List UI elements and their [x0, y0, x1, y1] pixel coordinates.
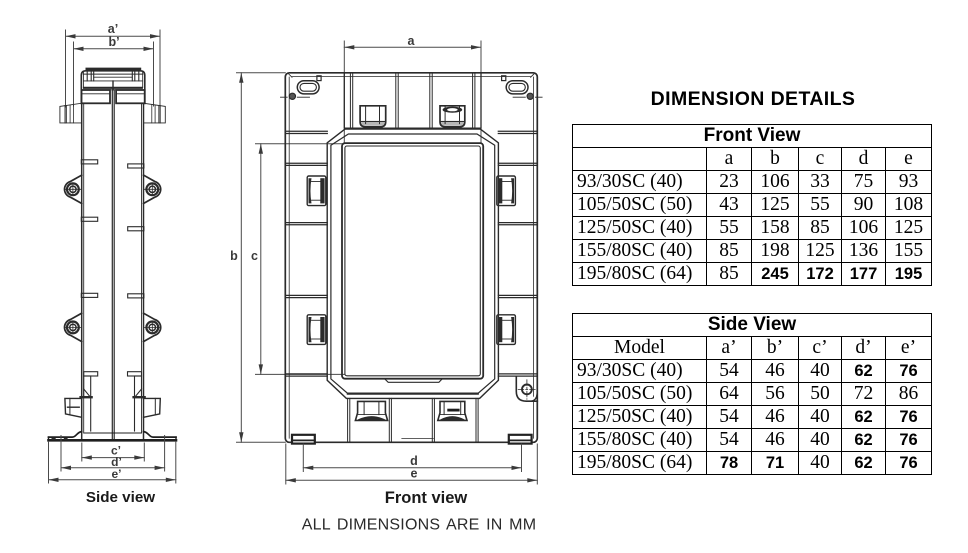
svg-text:ALL DIMENSIONS ARE IN MM: ALL DIMENSIONS ARE IN MM [302, 517, 536, 534]
svg-text:Front view: Front view [385, 489, 468, 507]
svg-text:e’: e’ [111, 467, 121, 481]
svg-text:a: a [408, 34, 416, 48]
svg-text:Side view: Side view [86, 489, 155, 506]
svg-text:c: c [251, 249, 258, 263]
svg-text:b: b [230, 249, 238, 263]
svg-text:b’: b’ [108, 35, 119, 49]
svg-text:a’: a’ [108, 22, 118, 36]
svg-text:e: e [411, 467, 418, 481]
